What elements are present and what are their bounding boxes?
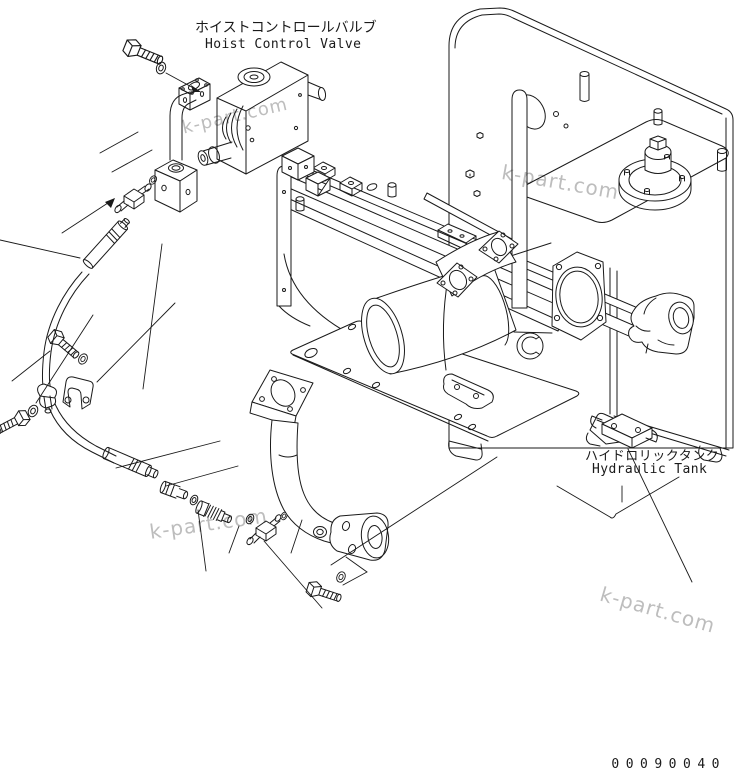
elbow-fitting: [114, 183, 153, 214]
washer: [335, 570, 347, 583]
hose-clamp: [38, 384, 57, 413]
pipe-flange: [330, 513, 391, 560]
parts-diagram-page: ホイストコントロールバルブ Hoist Control Valve ハイドロリッ…: [0, 0, 734, 778]
hydraulic-tank-label-en: Hydraulic Tank: [592, 462, 707, 477]
bolt: [0, 408, 32, 439]
hose-tube-lower: [102, 447, 160, 481]
hose-tube-upper: [82, 216, 132, 270]
hose-and-fittings: [0, 37, 167, 481]
bolt: [305, 580, 343, 606]
bolt: [122, 37, 166, 69]
return-elbow-pipe: [250, 370, 391, 606]
clamp-bracket: [63, 377, 93, 409]
diagram-canvas: [0, 0, 734, 778]
bolt: [46, 327, 83, 362]
drawing-number: 00090040: [611, 757, 726, 772]
hoist-valve-label-jp: ホイストコントロールバルブ: [195, 17, 377, 37]
valve-mount-tube: [155, 78, 210, 212]
tank-label-leader: [557, 477, 679, 518]
hoist-valve-label-en: Hoist Control Valve: [205, 37, 361, 52]
